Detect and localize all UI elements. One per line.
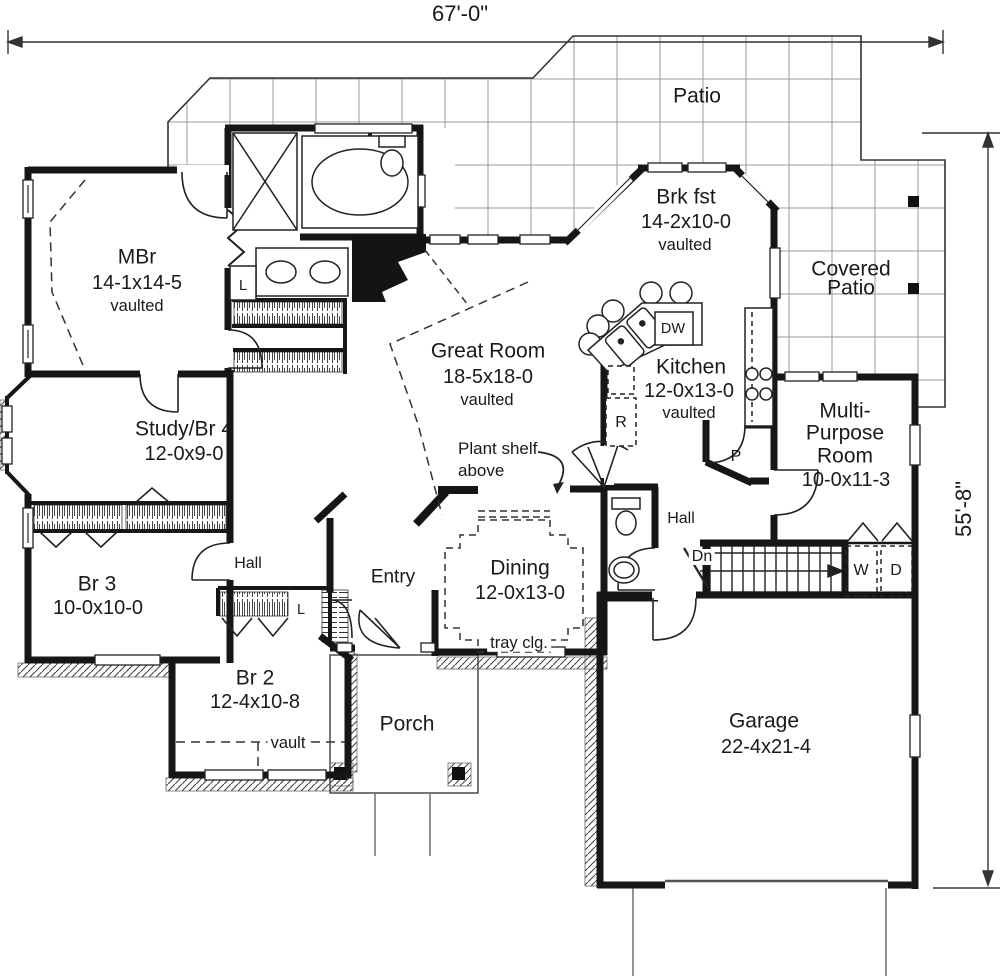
refrigerator-label: R xyxy=(615,415,627,431)
stool-icon xyxy=(640,282,662,304)
room-label-dining: Dining xyxy=(490,558,550,579)
linen-label-bath: L xyxy=(239,279,247,294)
pantry-label: P xyxy=(731,449,742,465)
plant-shelf-note-2: above xyxy=(458,461,504,481)
room-label-patio: Patio xyxy=(673,86,721,107)
room-note-br2: vault xyxy=(268,735,309,752)
room-size-brkfst: 14-2x10-0 xyxy=(641,212,731,232)
room-label-br2: Br 2 xyxy=(236,668,275,689)
cooktop-icon xyxy=(746,368,758,380)
room-size-dining: 12-0x13-0 xyxy=(475,583,565,603)
room-size-study: 12-0x9-0 xyxy=(145,444,224,464)
room-label-brkfst: Brk fst xyxy=(656,187,716,208)
washer-label: W xyxy=(853,563,868,579)
room-label-garage: Garage xyxy=(729,711,799,732)
plant-shelf-note-1: Plant shelf xyxy=(458,439,537,459)
stairs-down-label: Dn xyxy=(689,549,715,565)
room-note-brkfst: vaulted xyxy=(658,237,711,254)
toilet-icon xyxy=(381,150,403,176)
hall-label-left: Hall xyxy=(234,556,262,572)
room-size-garage: 22-4x21-4 xyxy=(721,737,811,757)
room-size-br2: 12-4x10-8 xyxy=(210,692,300,712)
room-note-mbr: vaulted xyxy=(110,298,163,315)
room-label-study: Study/Br 4 xyxy=(135,419,233,440)
dimension-width-label: 67'-0" xyxy=(432,3,488,25)
room-label-porch: Porch xyxy=(380,714,435,735)
linen-label-entry: L xyxy=(297,603,305,618)
room-label-multi-2: Purpose xyxy=(806,423,884,444)
room-label-great-room: Great Room xyxy=(431,341,545,362)
counter xyxy=(745,308,773,426)
room-note-dining: tray clg. xyxy=(487,635,551,652)
room-note-kitchen: vaulted xyxy=(662,405,715,422)
room-size-great-room: 18-5x18-0 xyxy=(443,367,533,387)
floor-plan: 67'-0" 55'-8" Patio Covered Patio Brk fs… xyxy=(0,0,1000,976)
room-label-entry: Entry xyxy=(371,568,415,587)
dimension-height-label: 55'-8" xyxy=(953,481,975,537)
dishwasher-label: DW xyxy=(661,322,685,337)
room-label-covered-patio-2: Patio xyxy=(827,278,875,299)
room-label-multi-3: Room xyxy=(817,446,873,467)
room-note-great-room: vaulted xyxy=(460,392,513,409)
room-size-mbr: 14-1x14-5 xyxy=(92,273,182,293)
hall-label-right: Hall xyxy=(667,511,695,527)
toilet-icon xyxy=(616,511,636,535)
room-label-kitchen: Kitchen xyxy=(656,357,726,378)
room-size-kitchen: 12-0x13-0 xyxy=(644,381,734,401)
stool-icon xyxy=(670,282,692,304)
room-label-br3: Br 3 xyxy=(78,574,117,595)
room-label-multi-1: Multi- xyxy=(819,401,870,422)
dryer-label: D xyxy=(890,563,902,579)
room-size-multi: 10-0x11-3 xyxy=(802,470,891,490)
room-size-br3: 10-0x10-0 xyxy=(53,598,143,618)
room-label-mbr: MBr xyxy=(118,247,157,268)
